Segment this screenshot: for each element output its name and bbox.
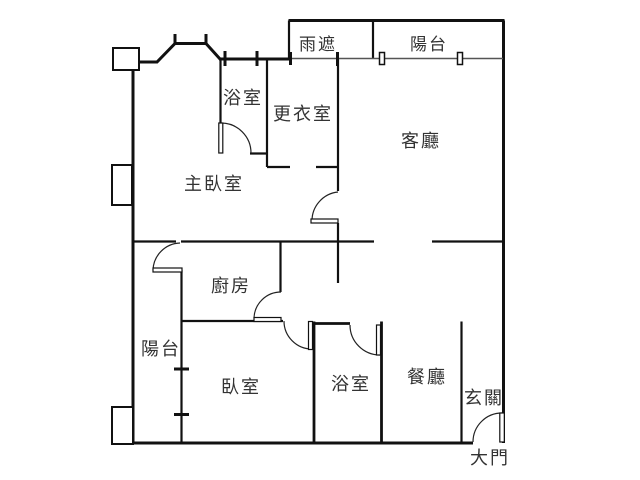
window-symbol-balcony-2	[458, 53, 463, 65]
wall-top-left-stepped	[133, 44, 220, 63]
room-label-rain-shelter: 雨遮	[299, 35, 337, 55]
room-label-balcony-left: 陽台	[141, 339, 181, 360]
kitchen-door	[254, 292, 281, 322]
pillar-columns	[112, 48, 139, 444]
bathroom-lower-door	[350, 325, 381, 355]
room-label-balcony-top: 陽台	[410, 35, 448, 55]
balcony-left-door	[153, 243, 182, 272]
room-label-dining-room: 餐廳	[407, 367, 447, 388]
bathroom-upper-door	[219, 123, 251, 153]
room-label-master-bedroom: 主臥室	[184, 174, 244, 195]
room-label-bedroom: 臥室	[221, 377, 261, 398]
master-bedroom-door	[311, 192, 338, 223]
room-label-entryway: 玄關	[464, 388, 504, 409]
pillar-bottom-left	[112, 407, 133, 444]
room-label-bathroom-upper: 浴室	[223, 88, 263, 109]
main-entry-door	[473, 413, 504, 442]
room-labels: 雨遮 陽台 浴室 更衣室 客廳 主臥室 廚房 陽台 臥室 浴室 餐廳 玄關 大門	[141, 35, 510, 469]
outer-walls	[132, 21, 505, 444]
room-label-main-door: 大門	[470, 448, 510, 469]
room-label-dressing-room: 更衣室	[273, 104, 333, 125]
interior-walls	[133, 21, 503, 444]
room-label-bathroom-lower: 浴室	[331, 374, 371, 395]
floor-plan-drawing: 雨遮 陽台 浴室 更衣室 客廳 主臥室 廚房 陽台 臥室 浴室 餐廳 玄關 大門	[0, 0, 640, 480]
floor-plan-page: 雨遮 陽台 浴室 更衣室 客廳 主臥室 廚房 陽台 臥室 浴室 餐廳 玄關 大門	[0, 0, 640, 480]
room-label-living-room: 客廳	[401, 131, 441, 152]
bedroom-door	[284, 321, 313, 350]
pillar-mid-left	[112, 165, 132, 205]
pillar-top-left	[113, 48, 139, 70]
doors	[153, 123, 504, 442]
window-symbol-balcony-1	[380, 53, 385, 65]
room-label-kitchen: 廚房	[211, 275, 251, 297]
